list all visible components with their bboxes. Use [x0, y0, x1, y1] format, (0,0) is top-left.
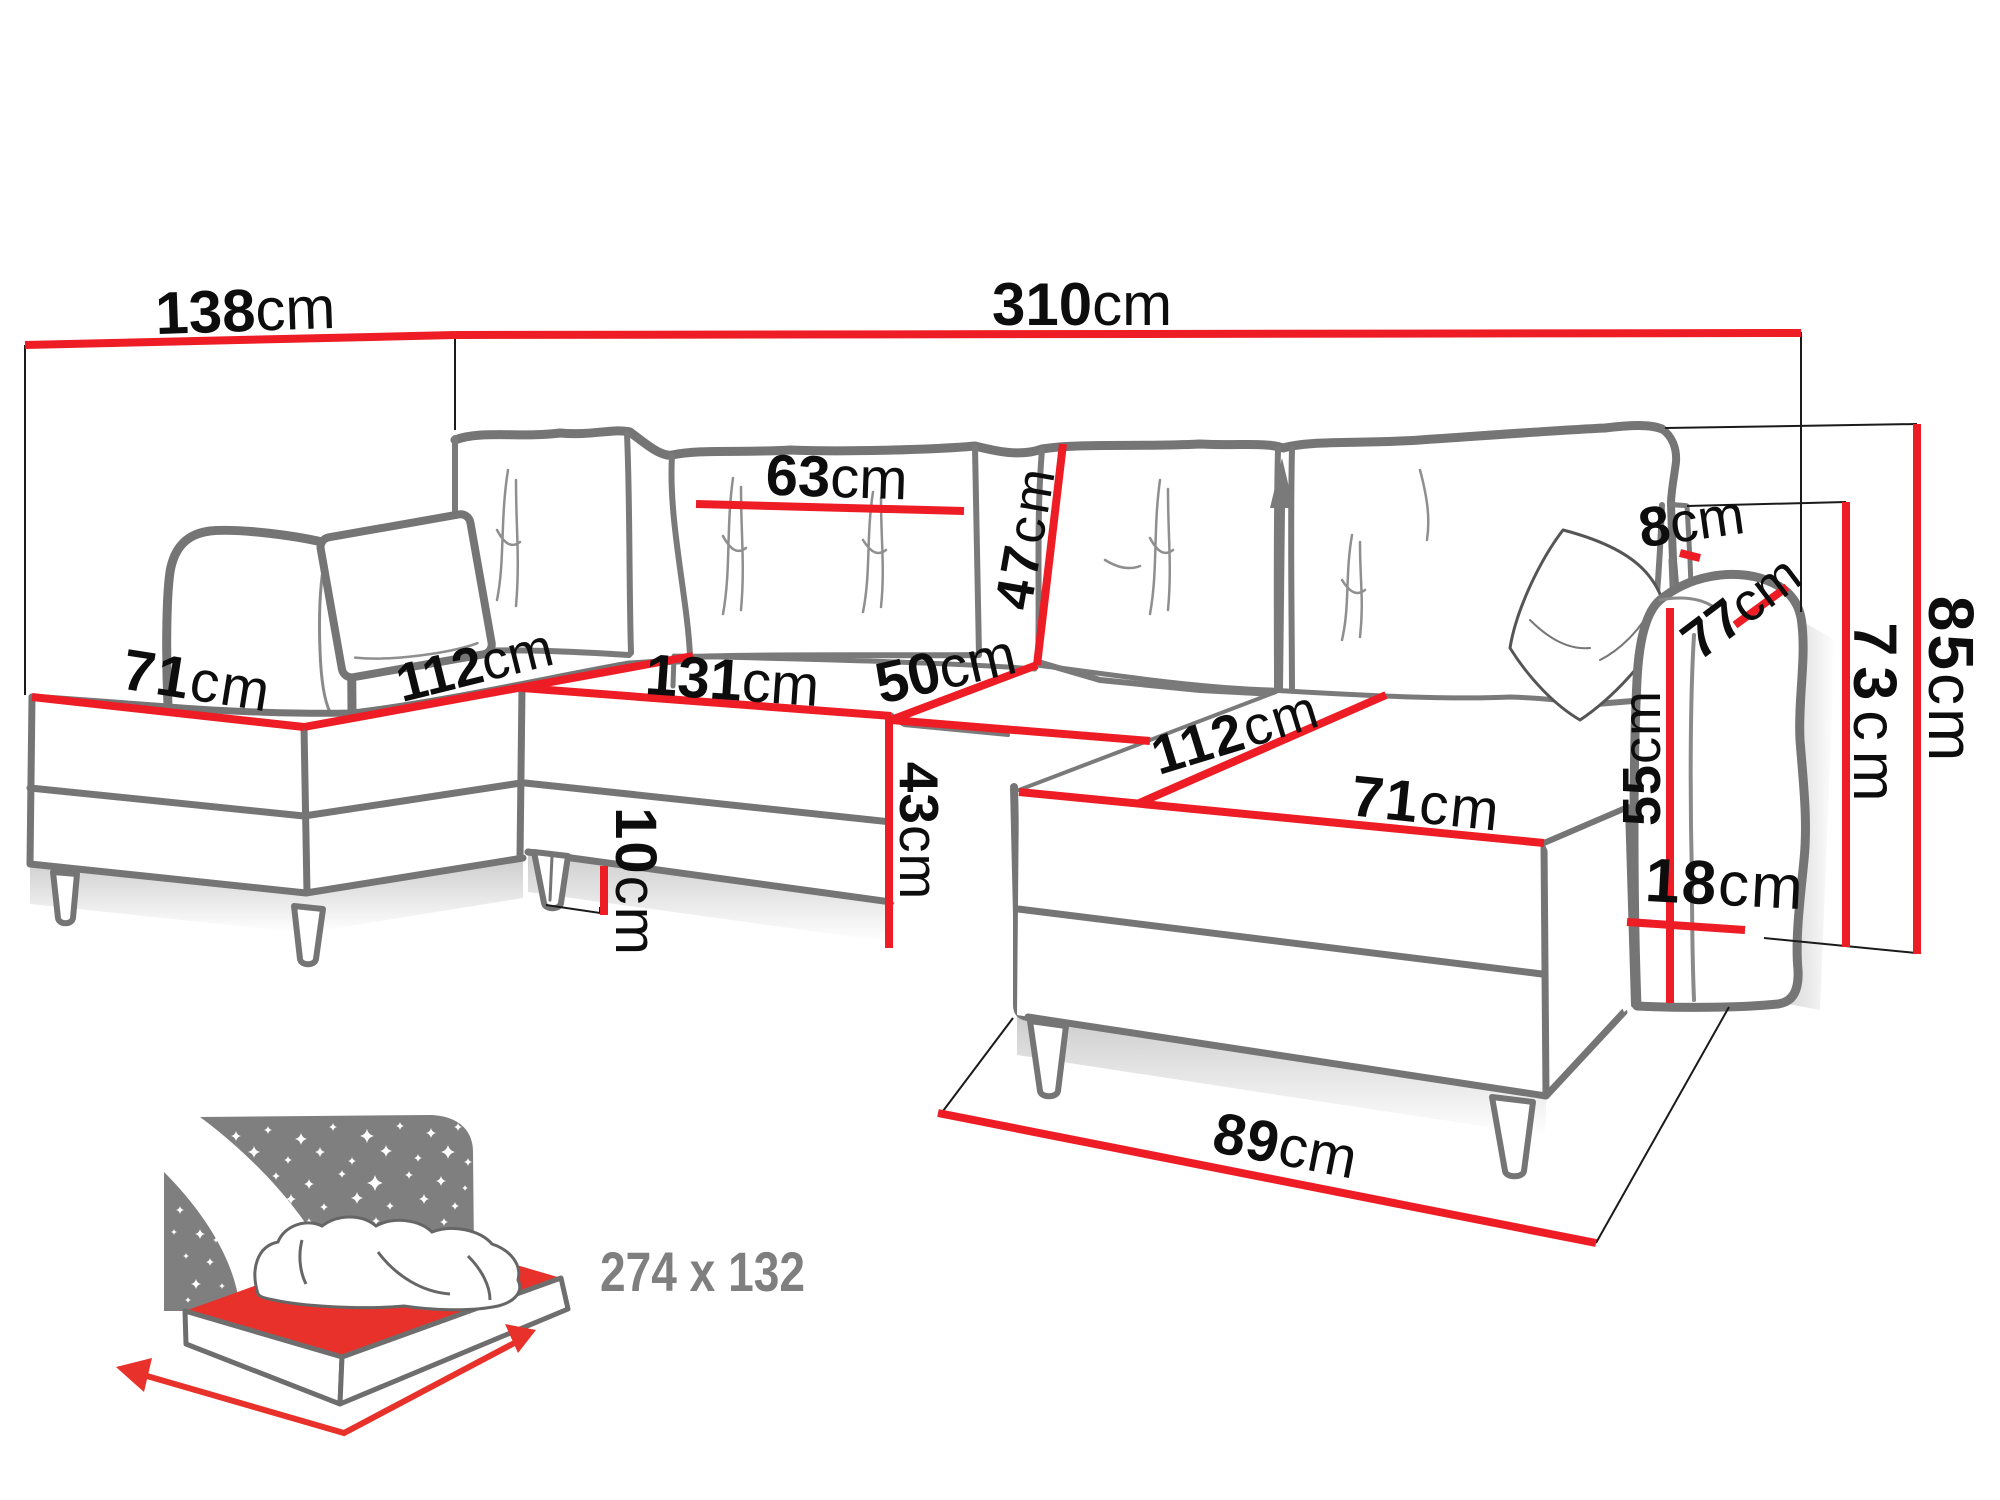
- svg-text:55cm: 55cm: [1612, 690, 1672, 826]
- svg-text:310cm: 310cm: [992, 271, 1172, 338]
- svg-text:63cm: 63cm: [765, 443, 909, 513]
- svg-text:131cm: 131cm: [643, 642, 821, 719]
- svg-text:138cm: 138cm: [154, 274, 336, 347]
- svg-text:43cm: 43cm: [888, 762, 950, 901]
- svg-text:73cm: 73cm: [1841, 622, 1909, 811]
- svg-text:10cm: 10cm: [603, 807, 668, 957]
- svg-text:85cm: 85cm: [1915, 596, 1987, 765]
- svg-text:18cm: 18cm: [1644, 846, 1807, 923]
- svg-text:274 x 132: 274 x 132: [600, 1240, 805, 1303]
